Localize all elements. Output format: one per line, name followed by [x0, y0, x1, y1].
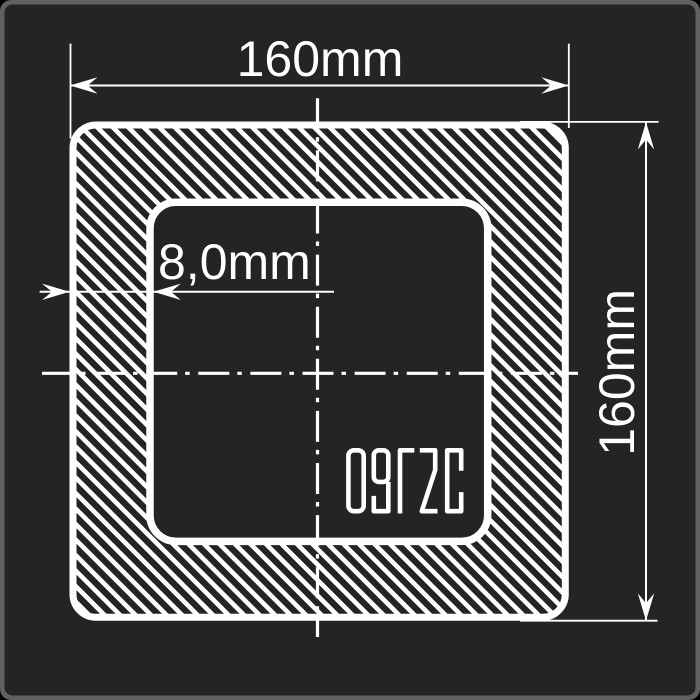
svg-text:8,0mm: 8,0mm: [158, 234, 311, 290]
svg-text:160mm: 160mm: [237, 31, 404, 87]
svg-text:160mm: 160mm: [589, 289, 645, 456]
